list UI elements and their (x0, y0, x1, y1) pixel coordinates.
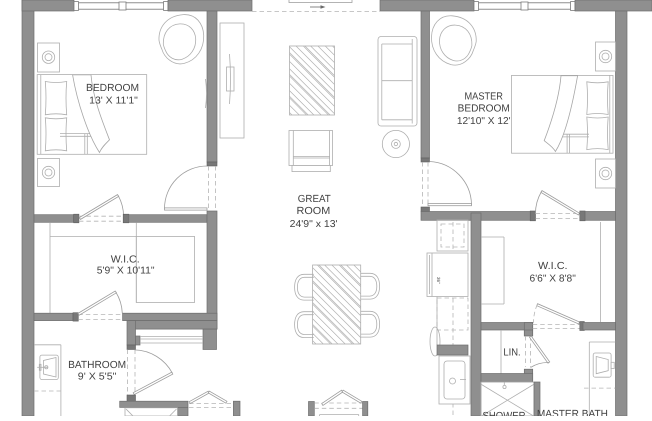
svg-text:LIN.: LIN. (503, 347, 520, 358)
svg-text:24'9" x 13': 24'9" x 13' (290, 219, 338, 230)
svg-text:BEDROOM: BEDROOM (458, 104, 510, 115)
svg-text:BATHROOM: BATHROOM (68, 360, 126, 371)
svg-text:BEDROOM: BEDROOM (86, 83, 139, 94)
svg-text:MASTER BATH: MASTER BATH (537, 409, 608, 416)
svg-text:36": 36" (436, 277, 441, 284)
svg-text:SHOWER: SHOWER (483, 411, 526, 416)
svg-text:GREAT: GREAT (298, 194, 332, 205)
svg-text:MASTER: MASTER (465, 91, 503, 102)
svg-text:W.I.C.: W.I.C. (111, 254, 140, 265)
svg-text:13' X 11'1": 13' X 11'1" (89, 95, 138, 106)
svg-text:12'10" X 12': 12'10" X 12' (457, 116, 511, 127)
svg-text:W.I.C.: W.I.C. (538, 261, 568, 272)
svg-text:6'6" X 8'8": 6'6" X 8'8" (530, 274, 577, 285)
svg-text:ROOM: ROOM (297, 206, 331, 217)
svg-text:5'9" X 10'11": 5'9" X 10'11" (97, 266, 155, 277)
svg-text:9' X 5'5": 9' X 5'5" (78, 372, 117, 383)
